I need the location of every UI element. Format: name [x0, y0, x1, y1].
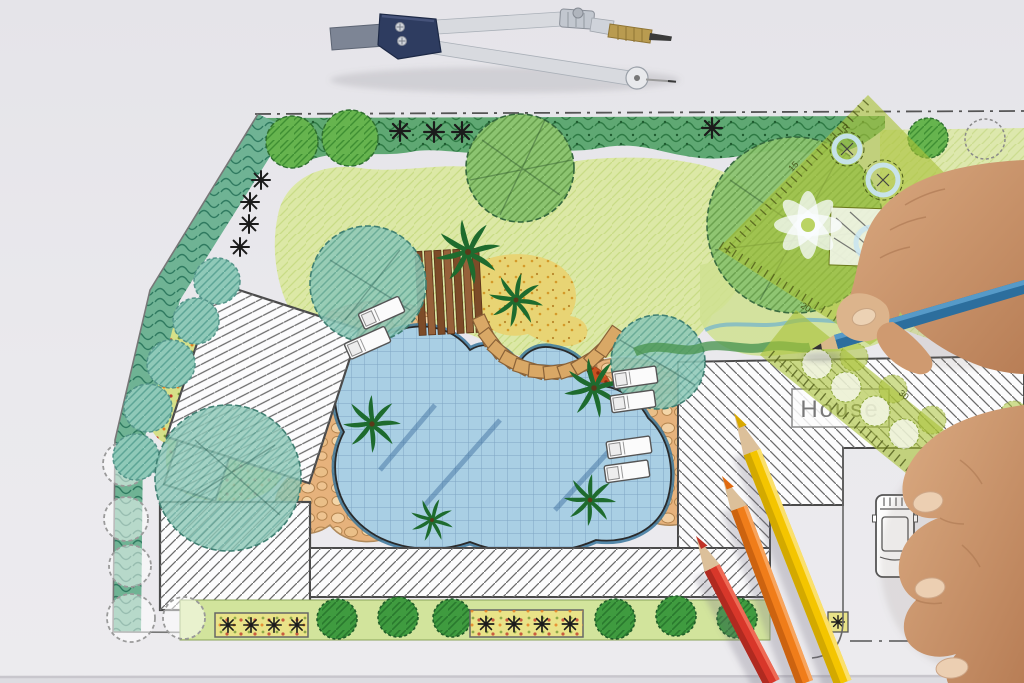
flower-planter-1	[215, 613, 308, 637]
compass-head	[378, 14, 441, 59]
template-flower-cutout	[774, 191, 842, 259]
garden-plan-photo: House 15 20	[0, 0, 1024, 683]
compass-adjuster	[559, 8, 594, 29]
photo-canvas: House 15 20	[0, 0, 1024, 683]
flower-planter-2	[470, 610, 583, 637]
lawn-tree	[466, 114, 574, 222]
paper-bottom-edge	[0, 676, 1024, 683]
compass-left-cap	[330, 24, 386, 50]
